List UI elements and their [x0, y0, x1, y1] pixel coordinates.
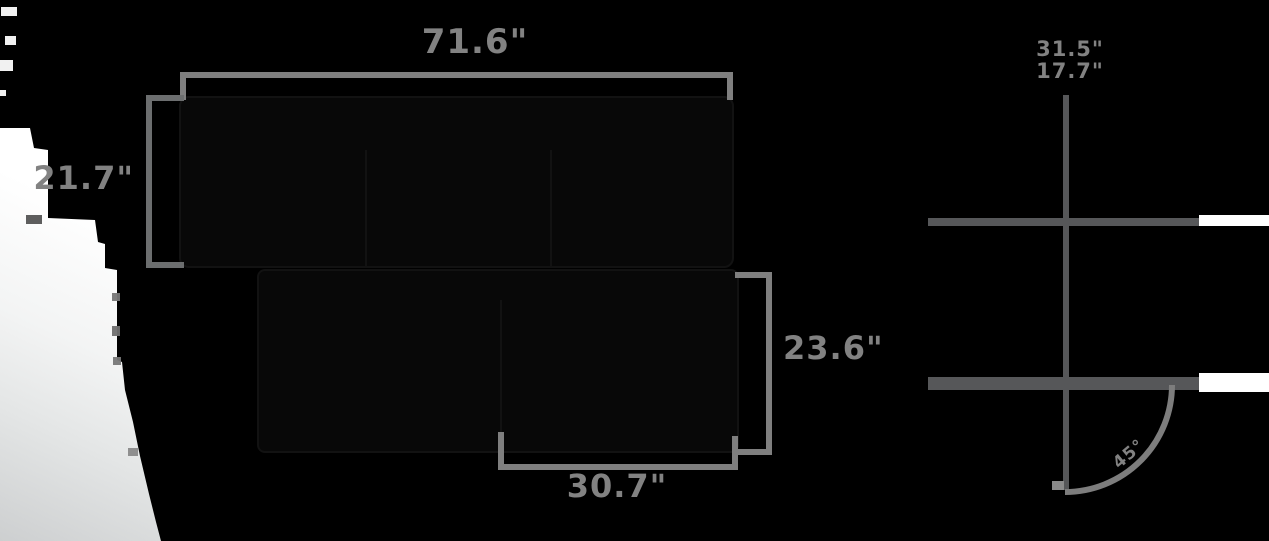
backdrop-speck	[5, 36, 16, 45]
chaise-depth-bracket-line	[766, 272, 772, 455]
chaise-depth-bracket-bottom	[735, 449, 772, 455]
lower-reference-line-white-end	[1199, 373, 1269, 392]
height-label-bottom: 17.7"	[1022, 60, 1118, 82]
chaise-width-tick-right	[732, 436, 738, 470]
edge-artifact	[26, 215, 42, 224]
edge-artifact	[112, 326, 120, 336]
upper-reference-line-white-end	[1199, 215, 1269, 226]
dimension-diagram: 71.6" 21.7" 23.6" 30.7" 31.5" 17.7"	[0, 0, 1269, 541]
width-dimension-tick-right	[727, 72, 733, 100]
sofa-seat-seam	[365, 150, 367, 266]
sofa-top-view-body	[179, 96, 734, 268]
backdrop-speck	[0, 90, 6, 96]
height-label-stack: 31.5" 17.7"	[1022, 38, 1118, 82]
backdrop-speck	[0, 60, 13, 71]
edge-artifact	[112, 293, 120, 301]
edge-artifact	[128, 448, 138, 456]
seat-depth-label: 21.7"	[30, 162, 134, 196]
backdrop-speck	[1, 7, 17, 16]
chaise-width-label: 30.7"	[557, 470, 677, 504]
seat-depth-bracket-line	[146, 95, 152, 268]
recline-arc	[1060, 380, 1180, 496]
sofa-seat-seam	[550, 150, 552, 266]
white-backdrop-shape	[0, 0, 170, 541]
width-dimension-line	[180, 72, 733, 78]
chaise-seat-seam	[500, 300, 502, 450]
edge-artifact	[113, 357, 121, 365]
height-label-top: 31.5"	[1022, 38, 1118, 60]
chaise-top-view-body	[257, 269, 739, 453]
chaise-depth-label: 23.6"	[783, 332, 884, 366]
width-dimension-label: 71.6"	[395, 25, 555, 61]
seat-depth-bracket-bottom	[146, 262, 184, 268]
upper-reference-line	[928, 218, 1199, 226]
